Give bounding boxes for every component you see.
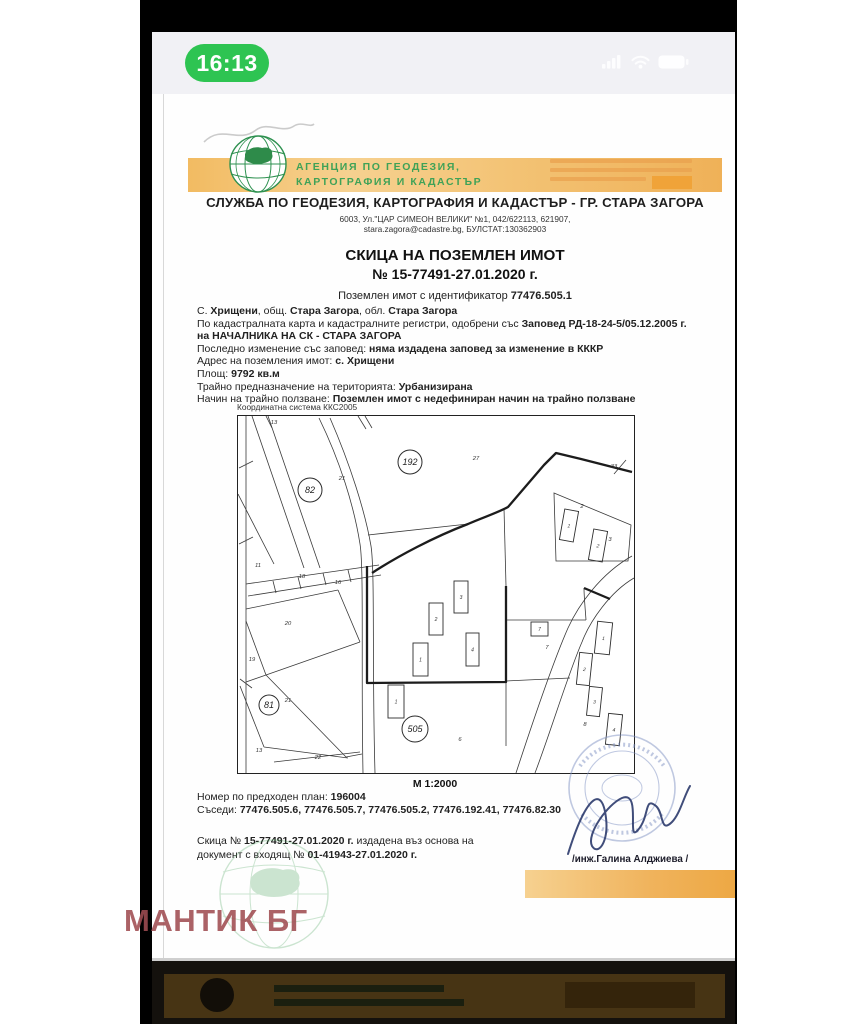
map-label: 18 <box>299 574 306 580</box>
map-label: 22 <box>314 755 322 761</box>
signer-name: /инж.Галина Алджиева / <box>572 854 688 865</box>
svg-text:82: 82 <box>305 485 315 495</box>
svg-text:505: 505 <box>407 724 423 734</box>
building-outline: 4 <box>466 633 479 666</box>
screenshot-canvas: 16:13 <box>0 0 855 1024</box>
map-label: 16 <box>335 580 342 586</box>
svg-text:1: 1 <box>419 658 422 664</box>
map-label: 11 <box>255 563 261 569</box>
phone-screen: 16:13 <box>152 32 735 1024</box>
office-address: 6003, Ул."ЦАР СИМЕОН ВЕЛИКИ" №1, 042/622… <box>172 214 738 224</box>
map-label: 19 <box>249 657 256 663</box>
svg-text:4: 4 <box>471 648 474 654</box>
contact-highlight-box <box>652 176 692 189</box>
site-watermark: МАНТИК БГ <box>124 903 308 939</box>
battery-icon <box>658 55 689 69</box>
dimmed-text-line <box>274 999 464 1006</box>
svg-text:3: 3 <box>593 699 597 705</box>
agency-name-line2: КАРТОГРАФИЯ И КАДАСТЪР <box>296 175 482 190</box>
svg-text:3: 3 <box>460 595 463 601</box>
page-bottom-edge <box>152 958 735 961</box>
svg-text:2: 2 <box>595 543 600 550</box>
dimmed-logo <box>200 978 234 1012</box>
property-info-line: Адрес на поземления имот: с. Хрищени <box>197 355 697 368</box>
map-label: 21 <box>284 698 291 704</box>
property-info-line: Трайно предназначение на територията: Ур… <box>197 381 697 394</box>
document-page[interactable]: АГЕНЦИЯ ПО ГЕОДЕЗИЯ, КАРТОГРАФИЯ И КАДАС… <box>152 94 735 958</box>
dimmed-contact-box <box>565 982 695 1008</box>
building-outline: 1 <box>594 621 612 654</box>
svg-text:81: 81 <box>264 700 274 710</box>
property-info-block: С. Хрищени, общ. Стара Загора, обл. Стар… <box>197 305 697 406</box>
property-identifier: Поземлен имот с идентификатор 77476.505.… <box>172 290 738 302</box>
previous-plan-number: Номер по предходен план: 196004 <box>197 791 366 803</box>
map-label: 13 <box>256 748 263 754</box>
map-label: 20 <box>284 621 292 627</box>
office-contact: stara.zagora@cadastre.bg, БУЛСТАТ:130362… <box>172 224 738 234</box>
dimmed-header-band <box>164 974 725 1018</box>
agency-globe-logo <box>228 134 288 194</box>
svg-text:2: 2 <box>582 667 587 673</box>
map-label: 13 <box>271 420 278 426</box>
property-info-line: Площ: 9792 кв.м <box>197 368 697 381</box>
building-outline: 1 <box>559 509 578 542</box>
building-outline: 2 <box>588 529 607 562</box>
agency-name-line1: АГЕНЦИЯ ПО ГЕОДЕЗИЯ, <box>296 160 482 175</box>
map-label: 7 <box>545 645 549 651</box>
cadastral-map: 8219281505132127331118162019211322786233… <box>238 416 634 773</box>
svg-text:1: 1 <box>395 700 398 706</box>
status-bar: 16:13 <box>152 32 735 94</box>
parcel-number-82: 82 <box>298 478 322 502</box>
agency-name: АГЕНЦИЯ ПО ГЕОДЕЗИЯ, КАРТОГРАФИЯ И КАДАС… <box>296 160 482 190</box>
signal-bars-icon <box>602 54 623 69</box>
document-title: СКИЦА НА ПОЗЕМЛЕН ИМОТ <box>172 247 738 264</box>
document-number: № 15-77491-27.01.2020 г. <box>172 266 738 282</box>
map-label: 3 <box>608 537 612 543</box>
building-outline: 2 <box>429 603 443 635</box>
building-outline: 1 <box>388 685 404 718</box>
property-info-line: По кадастралната карта и кадастралните р… <box>197 318 697 331</box>
parcel-number-505: 505 <box>402 716 428 742</box>
map-label: 6 <box>458 737 462 743</box>
status-icons <box>602 54 689 69</box>
map-label: 27 <box>472 456 480 462</box>
footer-orange-band <box>525 870 735 898</box>
wifi-icon <box>631 55 650 69</box>
svg-text:1: 1 <box>602 636 606 642</box>
cadastral-map-frame: 8219281505132127331118162019211322786233… <box>237 415 635 774</box>
page-edge-line <box>163 94 164 958</box>
property-info-line: С. Хрищени, общ. Стара Загора, обл. Стар… <box>197 305 697 318</box>
coordinate-system-label: Координатна система ККС2005 <box>237 402 357 412</box>
status-time-pill[interactable]: 16:13 <box>185 44 269 82</box>
map-label: 33 <box>611 464 618 470</box>
parcel-number-192: 192 <box>398 450 422 474</box>
contact-line <box>550 168 692 172</box>
dimmed-text-line <box>274 985 444 992</box>
header-contact-lines <box>550 159 692 186</box>
svg-text:192: 192 <box>402 457 417 467</box>
next-page-preview <box>152 958 735 1024</box>
building-outline: 1 <box>413 643 428 676</box>
office-name: СЛУЖБА ПО ГЕОДЕЗИЯ, КАРТОГРАФИЯ И КАДАСТ… <box>172 195 738 210</box>
svg-text:7: 7 <box>538 627 541 633</box>
property-info-line: на НАЧАЛНИКА НА СК - СТАРА ЗАГОРА <box>197 330 697 343</box>
svg-text:2: 2 <box>434 617 438 623</box>
contact-line <box>550 177 646 181</box>
neighbors-list: Съседи: 77476.505.6, 77476.505.7, 77476.… <box>197 804 561 816</box>
building-outline: 2 <box>576 652 592 685</box>
map-label: 21 <box>338 476 345 482</box>
svg-text:1: 1 <box>567 523 571 529</box>
building-outline: 7 <box>531 622 548 636</box>
building-outline: 3 <box>454 581 468 613</box>
parcel-number-81: 81 <box>259 695 279 715</box>
contact-line <box>550 159 692 163</box>
property-info-line: Последно изменение със заповед: няма изд… <box>197 343 697 356</box>
building-outline: 3 <box>587 686 603 716</box>
